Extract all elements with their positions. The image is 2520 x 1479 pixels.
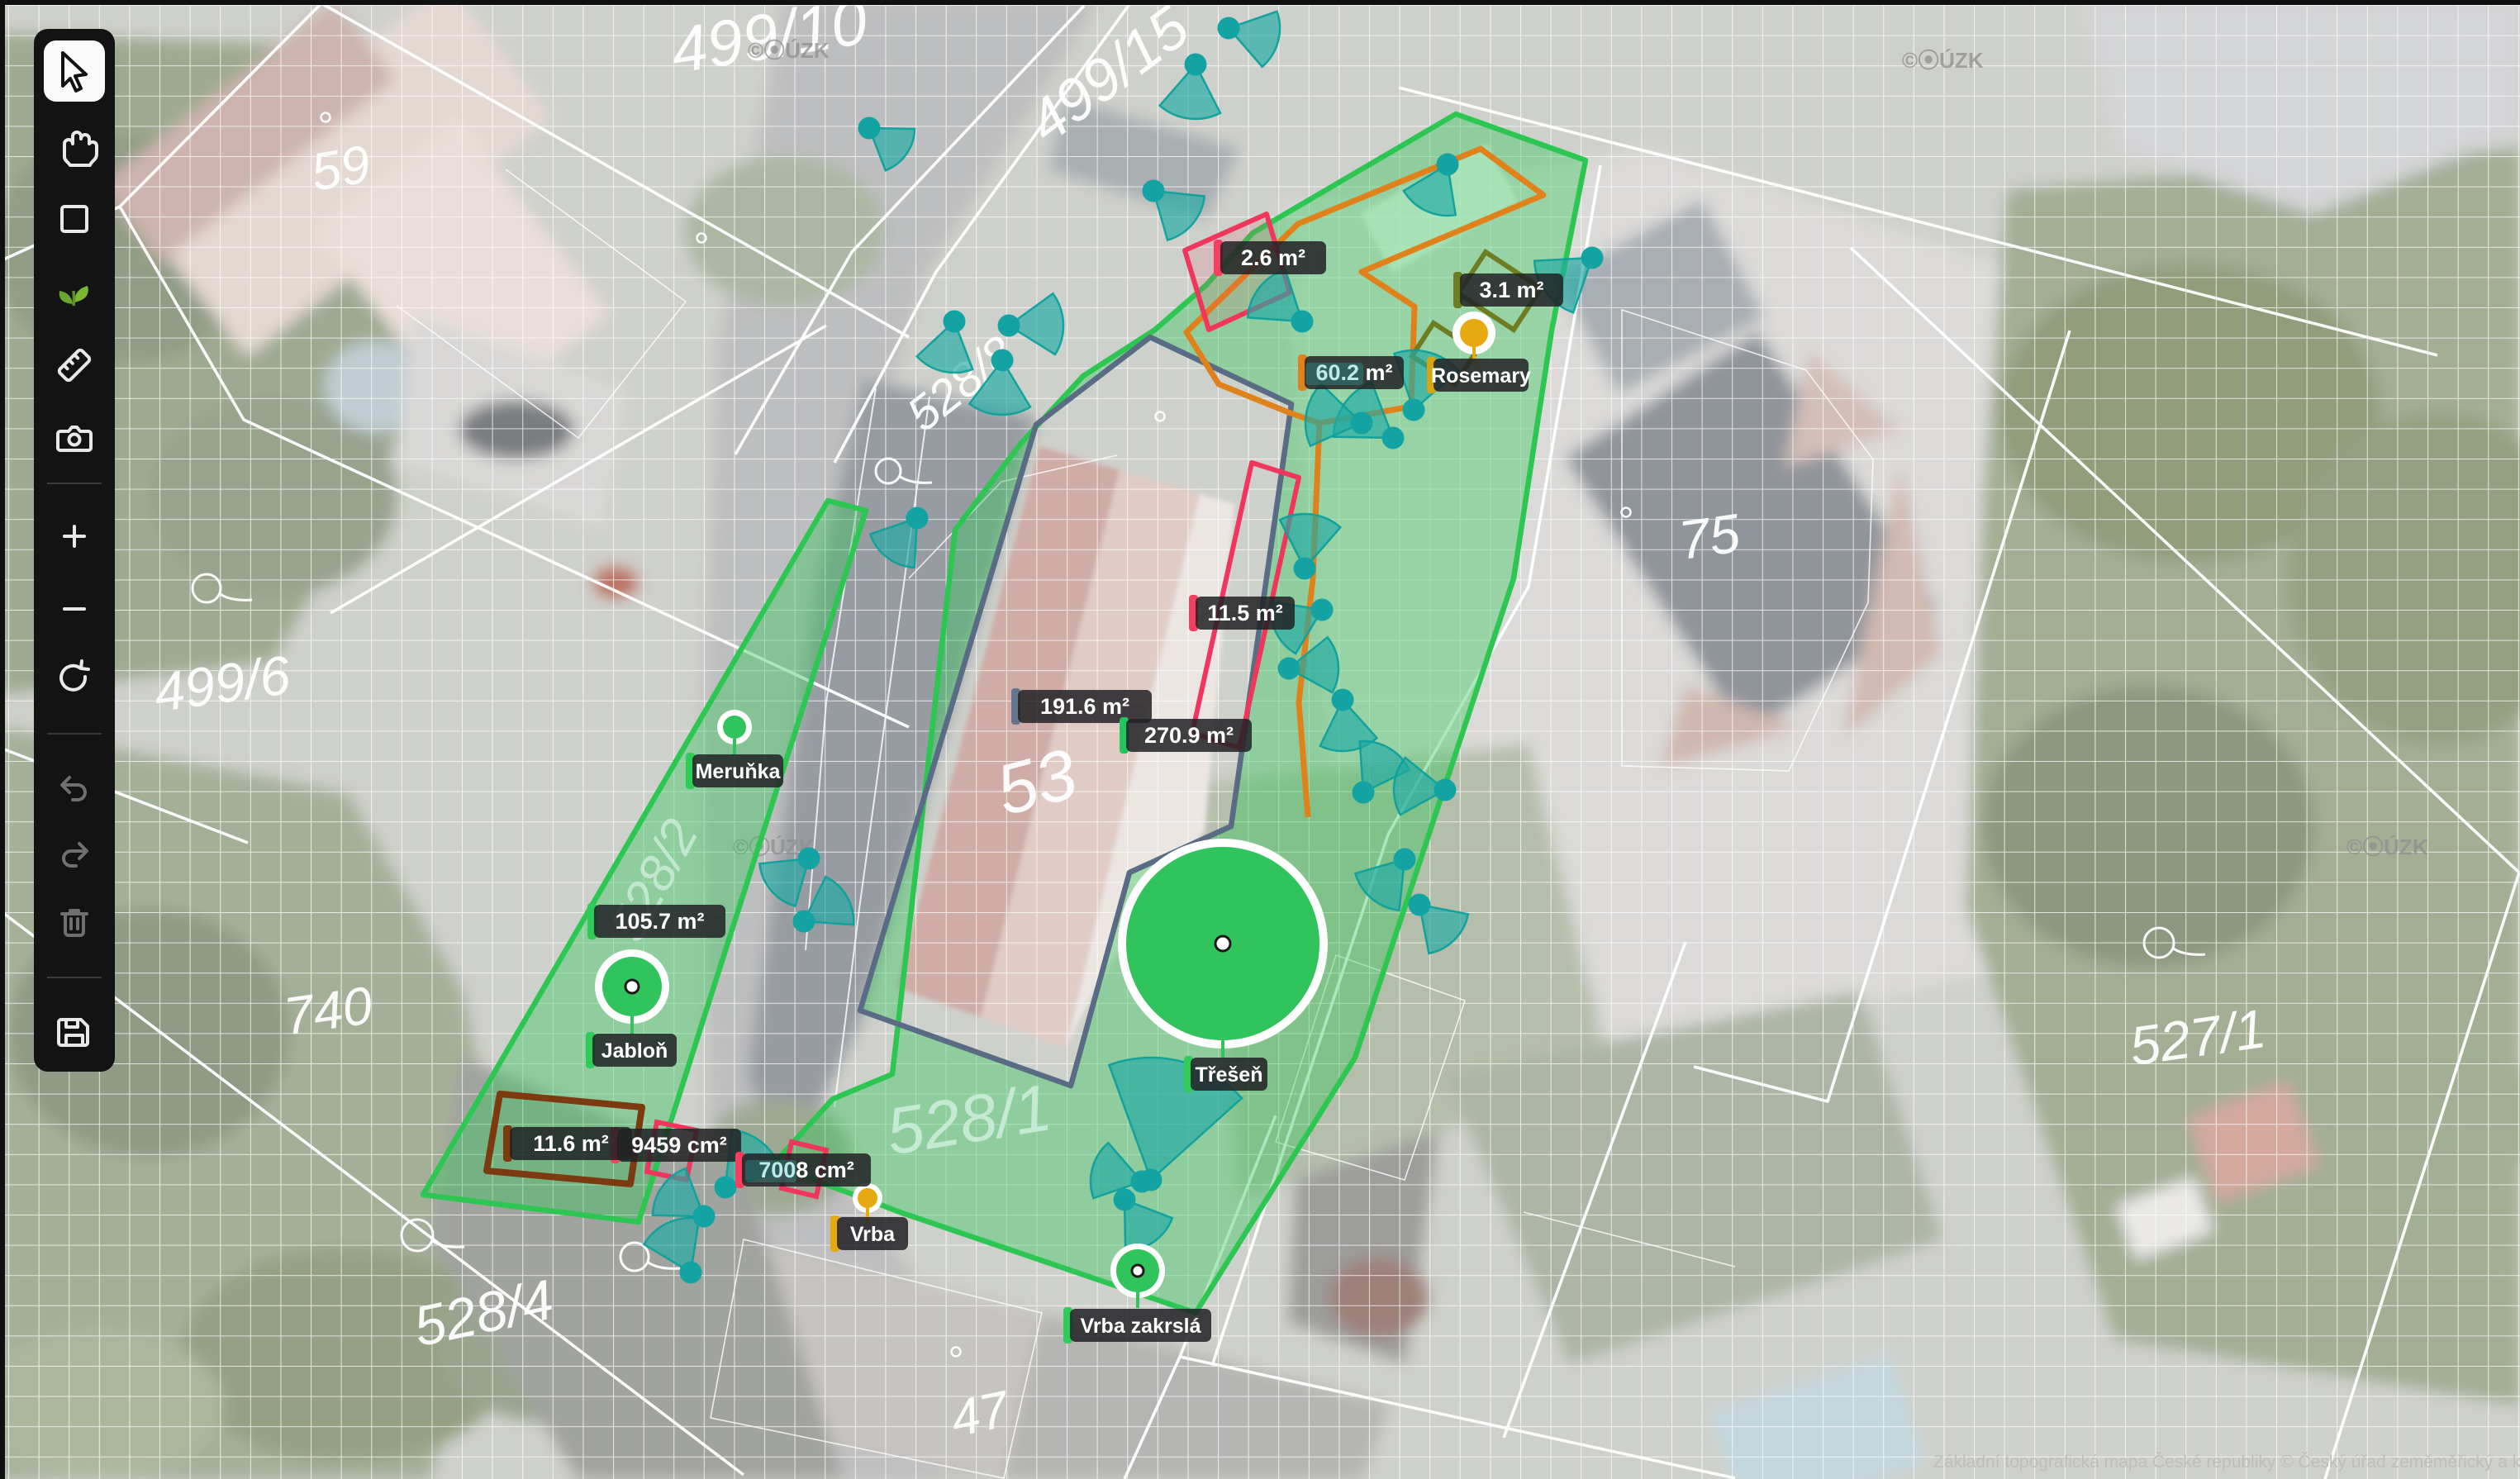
svg-text:59: 59 bbox=[307, 134, 375, 202]
svg-text:Jabloň: Jabloň bbox=[601, 1039, 668, 1063]
svg-text:11.6 m²: 11.6 m² bbox=[533, 1131, 609, 1156]
svg-text:270.9 m²: 270.9 m² bbox=[1144, 723, 1234, 748]
svg-text:Meruňka: Meruňka bbox=[696, 760, 782, 783]
svg-text:9459 cm²: 9459 cm² bbox=[631, 1133, 727, 1158]
svg-text:©⦿ÚZK: ©⦿ÚZK bbox=[748, 38, 830, 63]
svg-text:191.6 m²: 191.6 m² bbox=[1040, 694, 1129, 719]
svg-text:3.1 m²: 3.1 m² bbox=[1479, 278, 1543, 302]
svg-text:©⦿ÚZK: ©⦿ÚZK bbox=[1902, 48, 1984, 73]
svg-text:Rosemary: Rosemary bbox=[1431, 364, 1531, 388]
svg-text:740: 740 bbox=[280, 975, 376, 1046]
svg-text:©⦿ÚZK: ©⦿ÚZK bbox=[2346, 835, 2428, 859]
svg-text:105.7 m²: 105.7 m² bbox=[615, 909, 704, 934]
svg-text:Vrba: Vrba bbox=[850, 1223, 896, 1246]
svg-text:75: 75 bbox=[1675, 502, 1743, 571]
svg-text:Základní topografická mapa Čes: Základní topografická mapa České republi… bbox=[1933, 1453, 2520, 1472]
svg-text:Vrba zakrslá: Vrba zakrslá bbox=[1081, 1315, 1201, 1338]
svg-text:Třešeň: Třešeň bbox=[1196, 1063, 1263, 1087]
svg-text:11.5 m²: 11.5 m² bbox=[1207, 601, 1283, 625]
svg-text:2.6 m²: 2.6 m² bbox=[1241, 245, 1305, 270]
